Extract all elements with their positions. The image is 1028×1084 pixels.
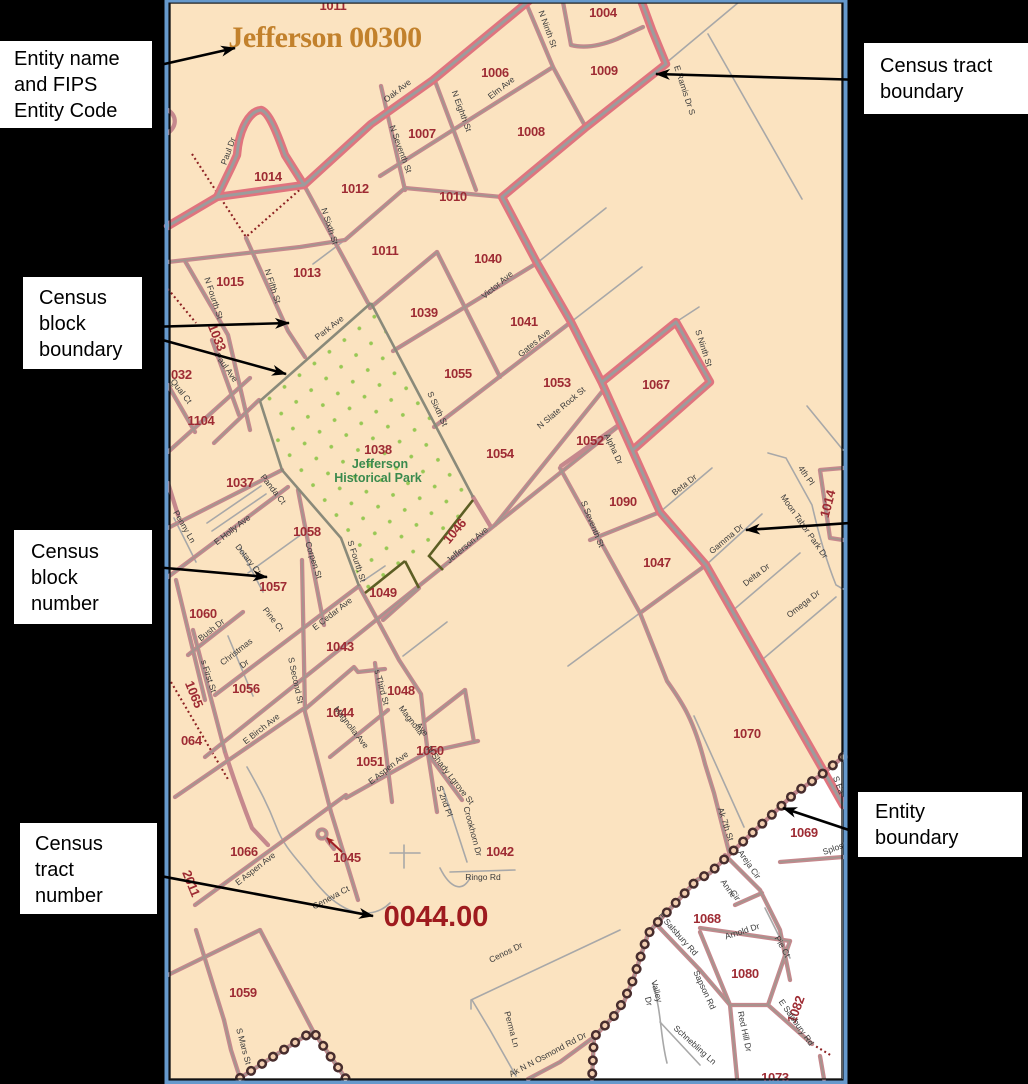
svg-text:Jefferson: Jefferson	[352, 457, 408, 471]
svg-text:Jefferson 00300: Jefferson 00300	[228, 21, 421, 54]
svg-text:1053: 1053	[543, 375, 571, 390]
svg-text:1069: 1069	[790, 825, 818, 840]
svg-text:1054: 1054	[486, 446, 515, 461]
svg-text:1052: 1052	[576, 433, 604, 448]
svg-text:1048: 1048	[387, 683, 415, 698]
svg-text:1066: 1066	[230, 844, 258, 859]
svg-text:1012: 1012	[341, 181, 369, 196]
svg-text:064: 064	[181, 733, 203, 748]
svg-text:1047: 1047	[643, 555, 671, 570]
svg-text:1090: 1090	[609, 494, 637, 509]
svg-text:1042: 1042	[486, 844, 514, 859]
svg-text:1038: 1038	[364, 442, 392, 457]
svg-text:1040: 1040	[474, 251, 502, 266]
svg-text:1049: 1049	[369, 585, 397, 600]
svg-text:1015: 1015	[216, 274, 244, 289]
svg-text:0044.00: 0044.00	[384, 901, 489, 933]
svg-text:1067: 1067	[642, 377, 670, 392]
svg-text:1010: 1010	[439, 189, 467, 204]
svg-text:1013: 1013	[293, 265, 321, 280]
svg-text:1068: 1068	[693, 911, 721, 926]
svg-text:1004: 1004	[589, 5, 618, 20]
svg-text:1056: 1056	[232, 681, 260, 696]
svg-text:1041: 1041	[510, 314, 538, 329]
svg-text:1057: 1057	[259, 579, 287, 594]
svg-text:1104: 1104	[187, 413, 215, 428]
svg-text:Historical Park: Historical Park	[334, 471, 422, 485]
svg-text:1045: 1045	[333, 850, 361, 865]
svg-text:Ringo Rd: Ringo Rd	[465, 872, 501, 882]
svg-text:1011: 1011	[371, 243, 398, 258]
svg-text:1060: 1060	[189, 606, 217, 621]
svg-text:1009: 1009	[590, 63, 618, 78]
svg-text:1043: 1043	[326, 639, 354, 654]
svg-text:1080: 1080	[731, 966, 759, 981]
svg-text:1070: 1070	[733, 726, 761, 741]
svg-text:1058: 1058	[293, 524, 321, 539]
svg-text:1008: 1008	[517, 124, 545, 139]
svg-text:1037: 1037	[226, 475, 254, 490]
svg-text:1007: 1007	[408, 126, 436, 141]
svg-text:1055: 1055	[444, 366, 472, 381]
svg-text:1014: 1014	[254, 169, 283, 184]
svg-text:1039: 1039	[410, 305, 438, 320]
svg-text:1059: 1059	[229, 985, 257, 1000]
